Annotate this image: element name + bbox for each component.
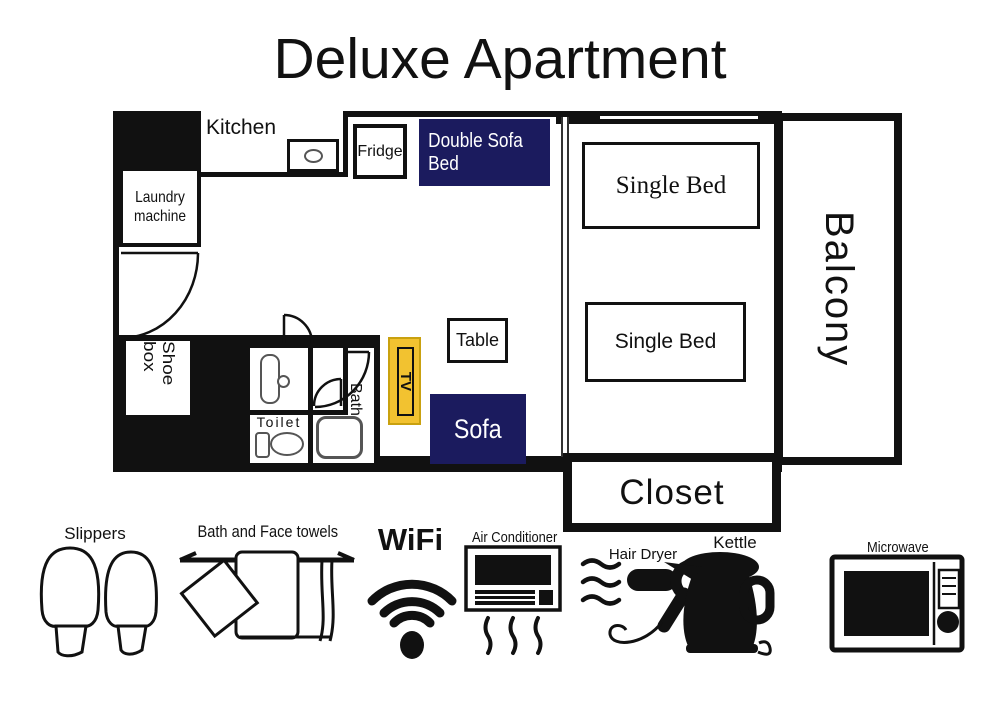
towels-icon — [180, 552, 354, 641]
toilet-label: Toilet — [250, 414, 308, 430]
closet-area: Closet — [563, 453, 781, 532]
sofa-box: Sofa — [430, 394, 526, 464]
microwave-icon — [832, 557, 962, 650]
tv-frame-icon: TV — [397, 347, 414, 416]
tv-label: TV — [397, 372, 414, 391]
sofa-label: Sofa — [454, 414, 502, 445]
bath-label: Bath — [346, 383, 364, 445]
floorplan-canvas: Deluxe Apartment Balcony Closet Kitchen … — [0, 0, 1000, 707]
amenity-icons-layer — [0, 0, 1000, 707]
wifi-icon — [372, 584, 452, 659]
toilet-bowl-icon — [270, 432, 304, 456]
washbasin-tap-icon — [277, 375, 290, 388]
tv-box: TV — [388, 337, 421, 425]
toilet-tank-icon — [255, 432, 270, 458]
air-conditioner-icon — [466, 547, 560, 653]
closet-label: Closet — [619, 473, 724, 513]
slippers-icon — [41, 548, 156, 656]
